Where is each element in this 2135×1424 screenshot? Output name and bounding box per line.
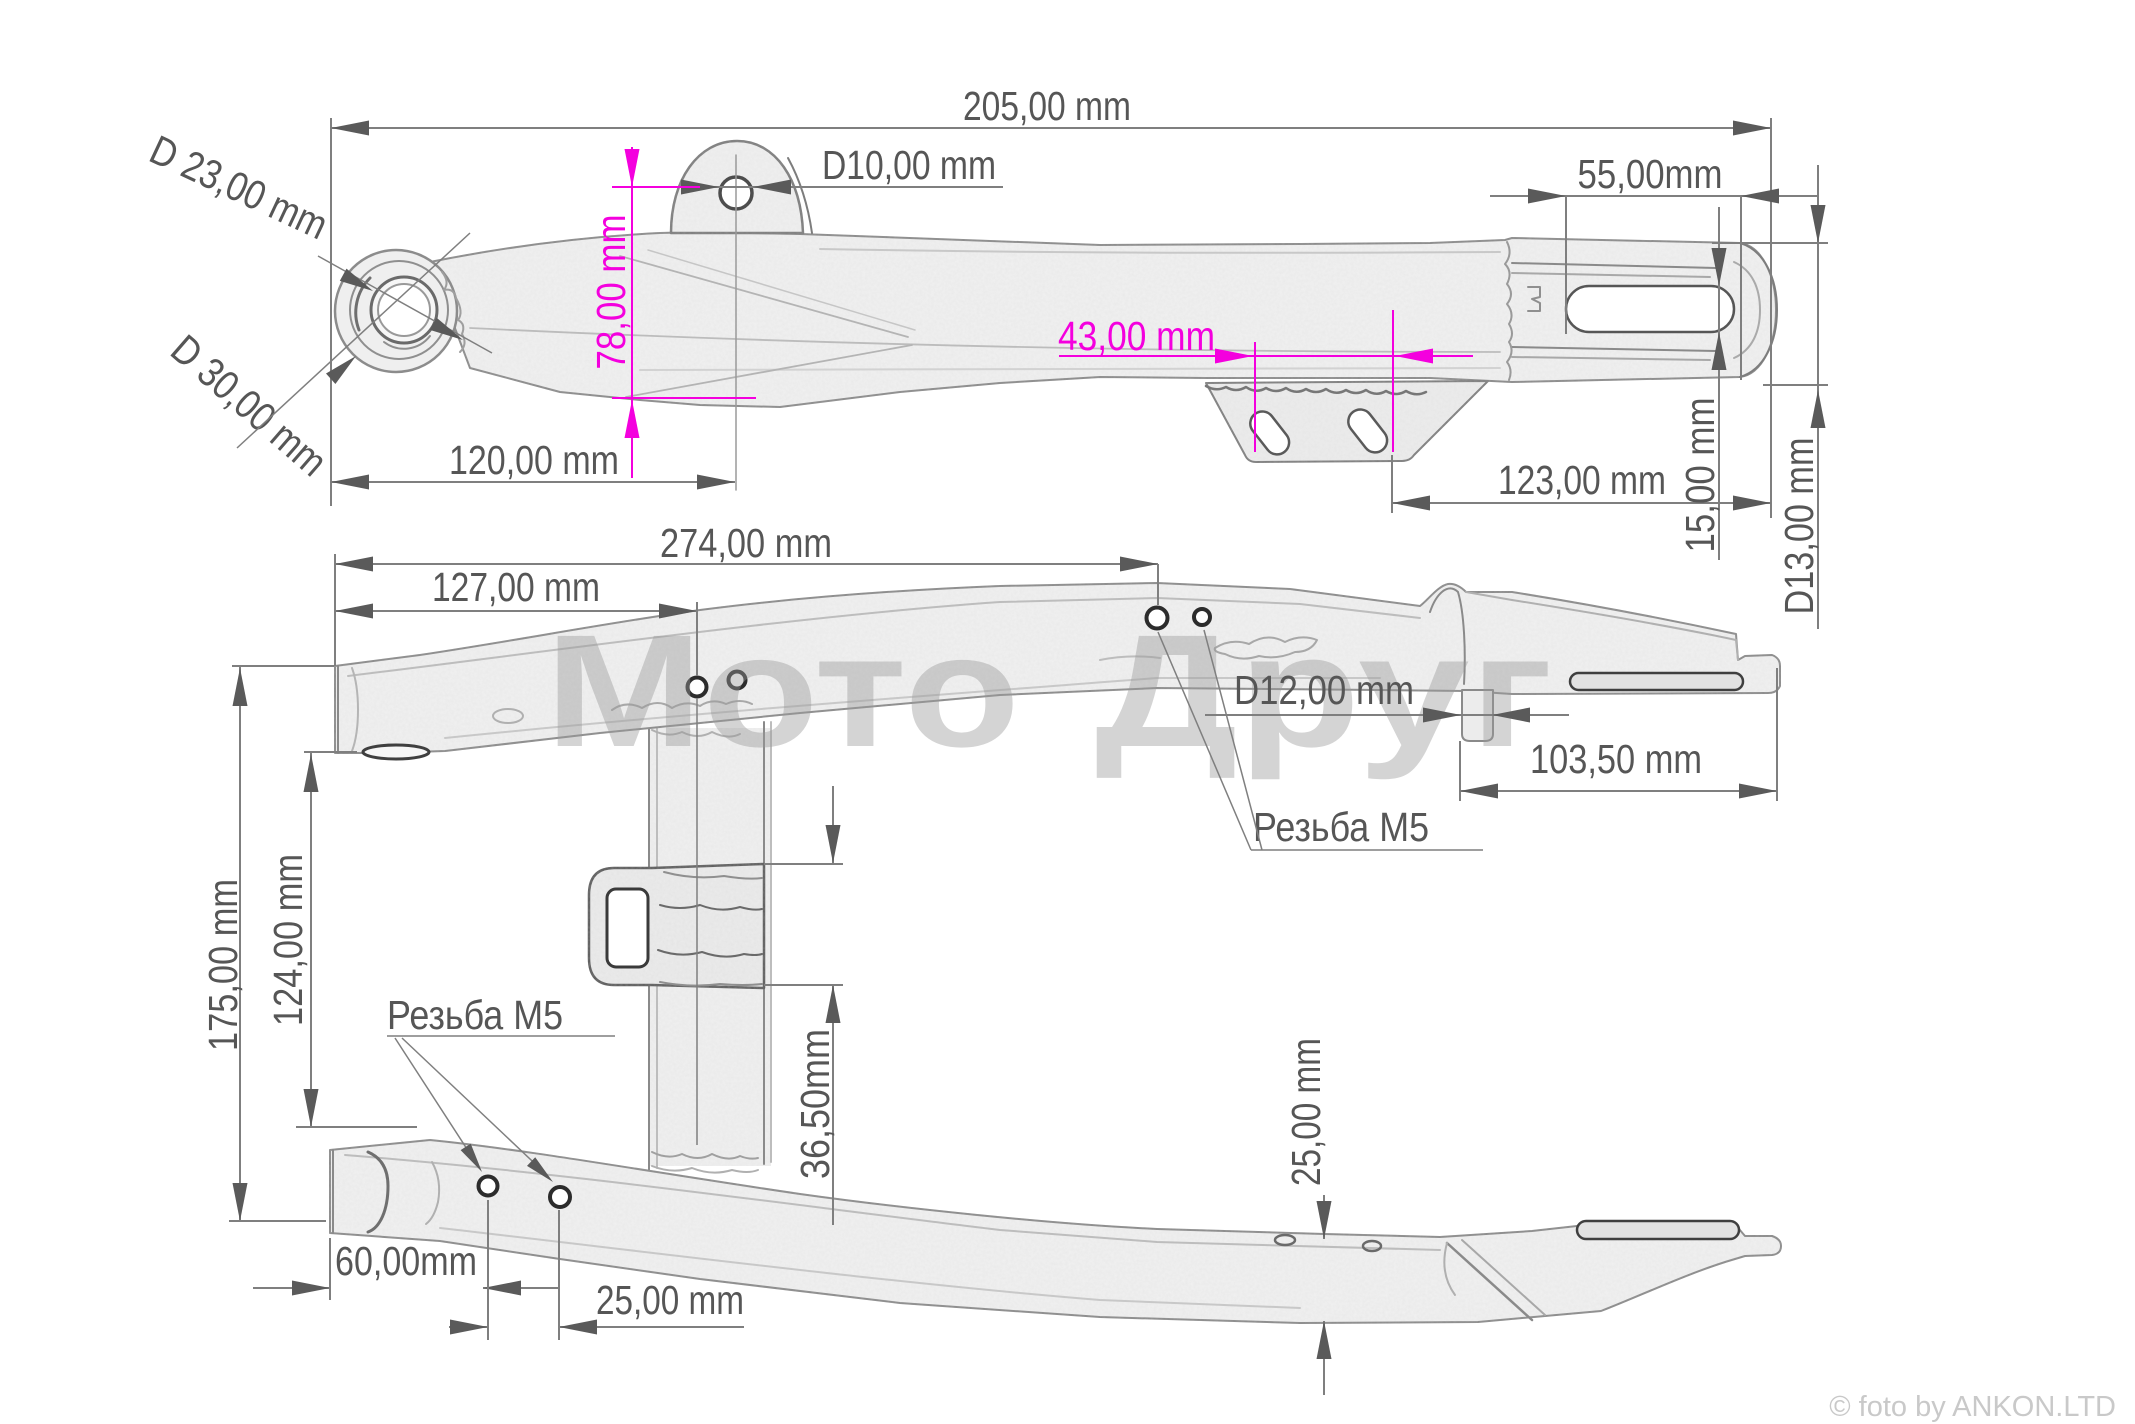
svg-text:205,00 mm: 205,00 mm [963,83,1131,129]
svg-text:Резьба М5: Резьба М5 [1253,804,1429,850]
svg-text:55,00mm: 55,00mm [1578,151,1723,197]
svg-text:Резьба М5: Резьба М5 [387,992,563,1038]
svg-text:15,00 mm: 15,00 mm [1677,398,1723,553]
svg-text:175,00 mm: 175,00 mm [200,879,246,1051]
svg-text:43,00 mm: 43,00 mm [1058,313,1215,359]
svg-text:© foto by ANKON.LTD: © foto by ANKON.LTD [1829,1391,2116,1423]
svg-text:Мото: Мото [545,601,1020,780]
svg-text:274,00 mm: 274,00 mm [660,520,832,566]
svg-text:127,00 mm: 127,00 mm [432,564,600,610]
svg-text:36,50mm: 36,50mm [792,1029,838,1179]
svg-text:124,00 mm: 124,00 mm [265,854,311,1026]
svg-text:120,00 mm: 120,00 mm [449,437,619,483]
svg-text:D10,00 mm: D10,00 mm [822,142,996,188]
svg-text:123,00 mm: 123,00 mm [1498,457,1666,503]
svg-text:60,00mm: 60,00mm [335,1238,477,1284]
svg-text:25,00 mm: 25,00 mm [1283,1038,1329,1186]
svg-text:D12,00 mm: D12,00 mm [1234,667,1414,713]
svg-text:D13,00 mm: D13,00 mm [1776,438,1822,615]
svg-text:103,50 mm: 103,50 mm [1530,736,1702,782]
svg-text:78,00 mm: 78,00 mm [588,215,634,370]
svg-text:25,00 mm: 25,00 mm [596,1277,744,1323]
